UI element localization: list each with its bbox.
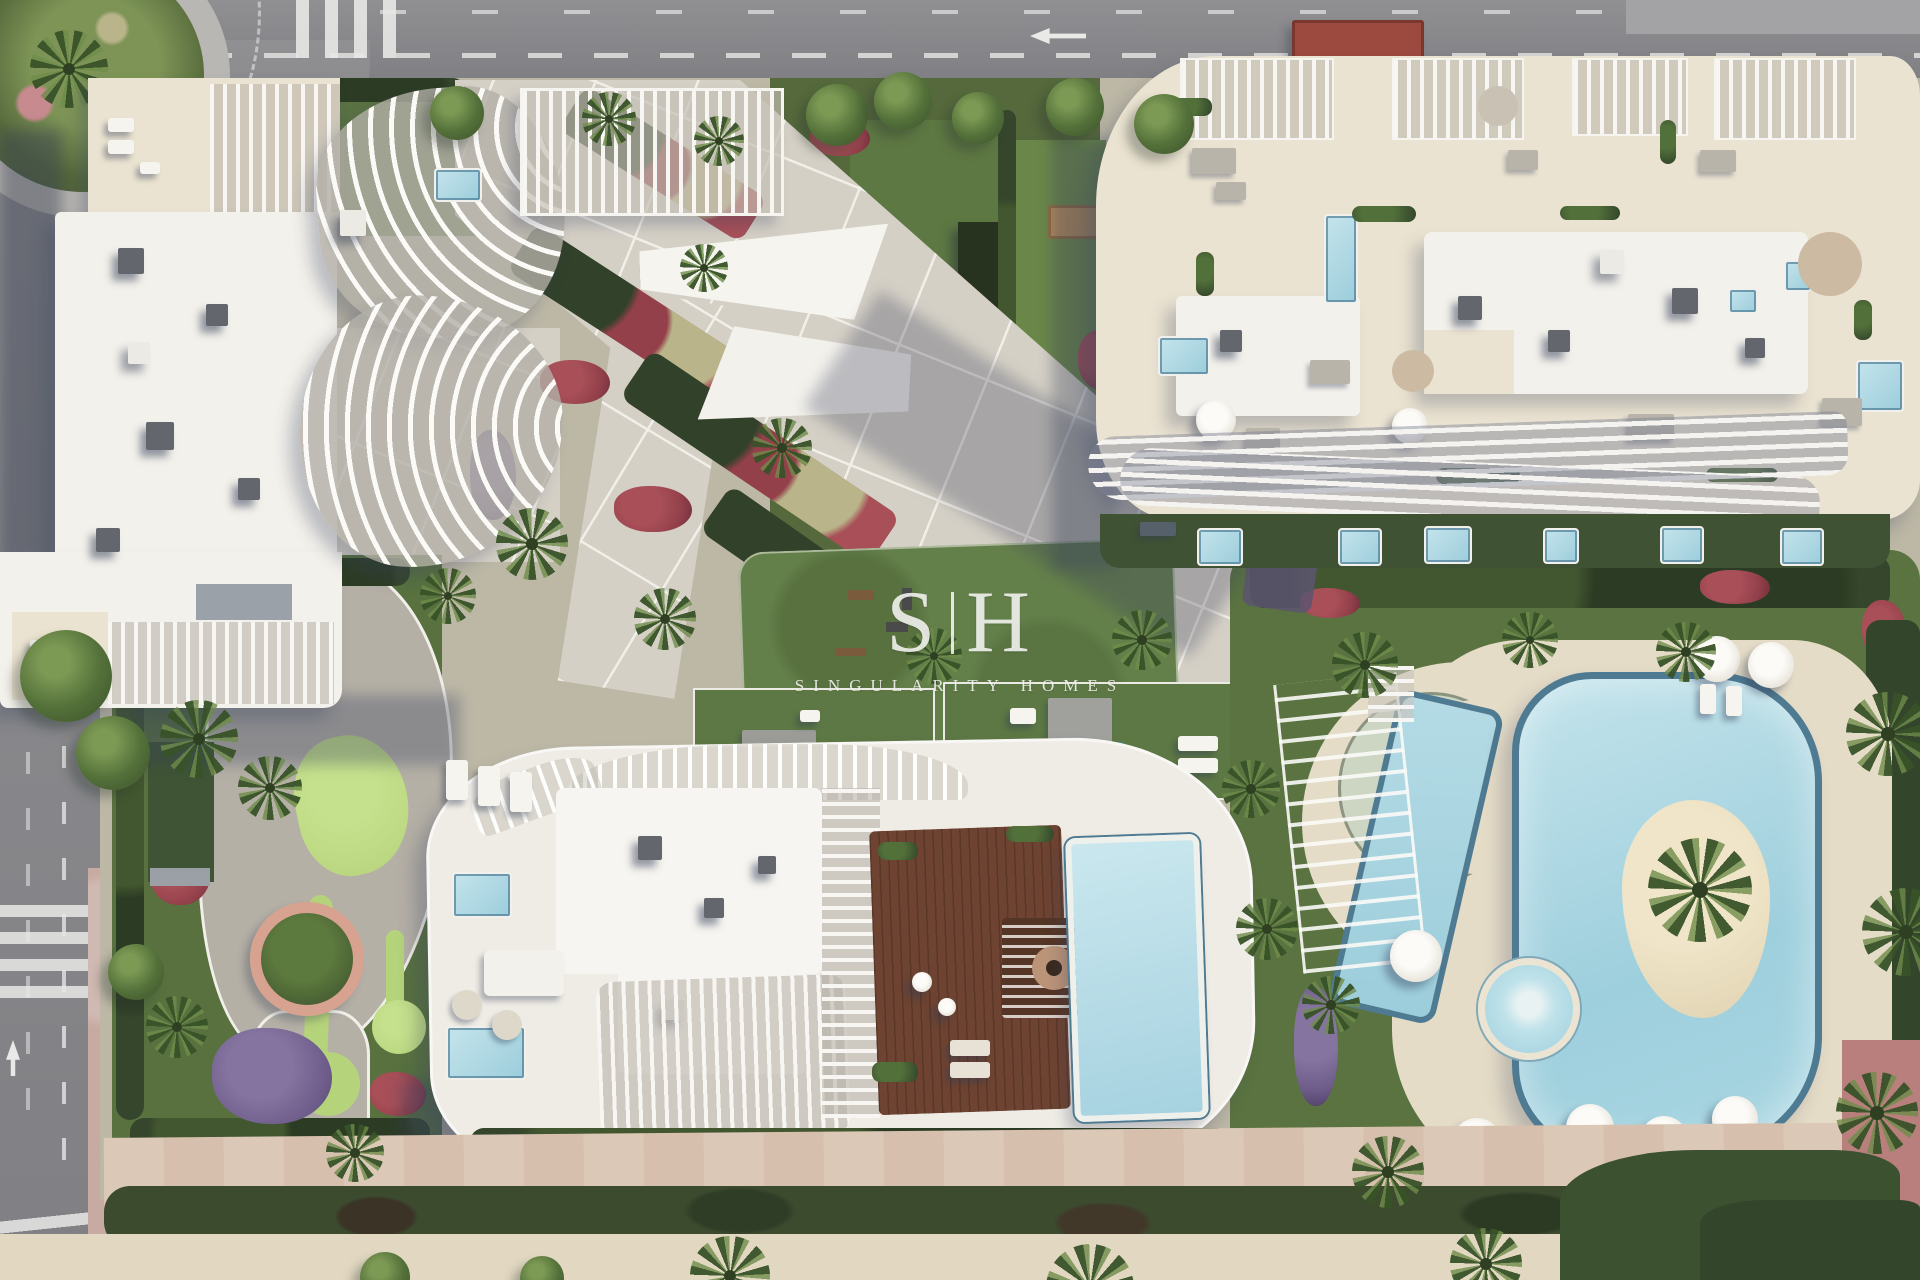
watermark-monogram: SH xyxy=(700,586,1220,662)
round-rug xyxy=(1478,86,1518,126)
private-pool xyxy=(1543,528,1579,564)
roof-skylight xyxy=(1600,250,1624,274)
building-a-lower-balcony xyxy=(108,622,334,704)
crosswalk-top xyxy=(296,0,400,58)
palm-tree xyxy=(146,996,208,1058)
kids-pool xyxy=(1478,958,1580,1060)
sidewalk-top-right xyxy=(1626,0,1920,34)
coffee-table xyxy=(1010,708,1036,724)
crosswalk-left xyxy=(0,900,92,998)
hanging-chair xyxy=(492,1010,522,1040)
terrace-planter xyxy=(1560,206,1620,220)
watermark-letter-s: S xyxy=(886,574,939,671)
ac-unit xyxy=(638,836,662,860)
palm-tree xyxy=(1236,898,1298,960)
flower-bed xyxy=(212,1028,332,1124)
palm-tree xyxy=(326,1124,384,1182)
palm-tree xyxy=(694,116,744,166)
palm-tree xyxy=(582,92,636,146)
terrace-furniture xyxy=(108,140,134,154)
sun-lounger xyxy=(1178,736,1218,751)
sun-lounger xyxy=(510,772,532,812)
deck-planter xyxy=(872,1062,918,1082)
palm-tree xyxy=(1332,632,1398,698)
outdoor-sofa xyxy=(1048,698,1112,742)
flower-bed xyxy=(614,486,692,532)
roof-skylight xyxy=(128,342,150,364)
palm-tree xyxy=(1836,1072,1918,1154)
ac-unit xyxy=(1672,288,1698,314)
ac-unit xyxy=(206,304,228,326)
rooftop-jacuzzi xyxy=(452,872,512,918)
flower-bed xyxy=(1700,570,1770,604)
palm-tree xyxy=(1302,976,1360,1034)
ac-unit xyxy=(1458,296,1482,320)
terrace-dining-set xyxy=(1192,148,1236,174)
watermark-divider-bar xyxy=(951,592,954,654)
entrance-pergola xyxy=(520,88,784,216)
rooftop-pool xyxy=(1856,360,1904,412)
dining-table xyxy=(1046,960,1062,976)
road-tree xyxy=(20,630,112,722)
ac-unit xyxy=(758,856,776,874)
ac-unit xyxy=(1548,330,1570,352)
ac-unit xyxy=(1745,338,1765,358)
palm-tree-island xyxy=(1648,838,1752,942)
rooftop-plunge-pool xyxy=(434,168,482,202)
deck-lounger xyxy=(950,1040,990,1056)
round-planter xyxy=(250,902,364,1016)
palm-tree xyxy=(680,244,728,292)
street-tree xyxy=(806,84,868,146)
private-pool xyxy=(1660,526,1704,564)
rooftop-pool xyxy=(1324,214,1358,304)
building-c-roof xyxy=(556,788,822,974)
round-rug xyxy=(1392,350,1434,392)
private-pool xyxy=(1197,528,1243,566)
sun-lounger xyxy=(1700,684,1716,714)
building-a-shaded-slab xyxy=(196,584,292,620)
putting-green-bulb xyxy=(372,1000,426,1054)
hanging-chair xyxy=(452,990,482,1020)
rooftop-jacuzzi xyxy=(1728,288,1758,314)
palm-tree xyxy=(420,568,476,624)
terrace-planter xyxy=(1352,206,1416,222)
ac-unit xyxy=(146,422,174,450)
putting-green-stem xyxy=(386,930,404,1010)
building-b-pergola xyxy=(1714,58,1856,140)
rooftop-pool xyxy=(1158,336,1210,376)
parasol xyxy=(1748,642,1794,688)
watermark-letter-h: H xyxy=(966,574,1034,671)
street-tree xyxy=(874,72,932,130)
street-tree xyxy=(952,92,1004,144)
deck-pouf xyxy=(912,972,932,992)
terrace-planter xyxy=(1660,120,1676,164)
roof-skylight xyxy=(340,210,366,236)
terrace-furniture xyxy=(1216,182,1246,200)
aerial-render: SH SINGULARITY HOMES xyxy=(0,0,1920,1280)
tree-mass-bottom-right xyxy=(1700,1200,1920,1280)
sun-lounger xyxy=(478,766,500,806)
sidewalk-tree xyxy=(108,944,164,1000)
terrace-furniture xyxy=(1508,150,1538,170)
palm-tree xyxy=(238,756,302,820)
palm-tree xyxy=(496,508,568,580)
side-table xyxy=(800,710,820,722)
ac-unit xyxy=(96,528,120,552)
terrace-furniture xyxy=(108,118,134,132)
road-tree xyxy=(76,716,150,790)
parasol xyxy=(1390,930,1442,982)
street-tree xyxy=(430,86,484,140)
ac-unit xyxy=(238,478,260,500)
street-tree xyxy=(1046,78,1104,136)
deck-pouf xyxy=(938,998,956,1016)
palm-tree xyxy=(1222,760,1280,818)
stone-slab xyxy=(150,868,210,886)
terrace-dining-table xyxy=(484,950,564,996)
deck-planter xyxy=(1006,826,1054,842)
deck-planter xyxy=(878,842,918,860)
round-rug xyxy=(1798,232,1862,296)
garden-lounger xyxy=(1140,522,1176,536)
ac-unit xyxy=(118,248,144,274)
terrace-furniture xyxy=(140,162,160,174)
private-pool xyxy=(1780,528,1824,566)
building-a-shadow xyxy=(0,130,62,560)
terrace-planter xyxy=(1196,252,1214,296)
palm-tree xyxy=(1846,692,1920,776)
palm-tree xyxy=(1352,1136,1424,1208)
building-a-main-roof xyxy=(55,212,337,562)
sun-lounger xyxy=(1726,686,1742,716)
palm-tree xyxy=(160,700,238,778)
palm-tree xyxy=(752,418,812,478)
watermark: SH SINGULARITY HOMES xyxy=(700,586,1220,696)
street-tree xyxy=(1134,94,1194,154)
building-c-slat-court xyxy=(595,974,850,1143)
terrace-furniture xyxy=(1310,360,1350,384)
terrace-planter xyxy=(1854,300,1872,340)
sun-lounger xyxy=(446,760,468,800)
palm-tree xyxy=(634,588,696,650)
building-b-roof-notch xyxy=(1424,330,1514,394)
palm-tree xyxy=(1656,622,1716,682)
watermark-wordmark: SINGULARITY HOMES xyxy=(700,676,1220,696)
deck-lounger xyxy=(950,1062,990,1078)
private-pool xyxy=(1424,526,1472,564)
rooftop-infinity-pool xyxy=(1065,834,1209,1123)
terrace-dining-set xyxy=(1700,150,1736,172)
ac-unit xyxy=(704,898,724,918)
private-pool xyxy=(1338,528,1382,566)
ac-unit xyxy=(1220,330,1242,352)
palm-tree xyxy=(1502,612,1558,668)
